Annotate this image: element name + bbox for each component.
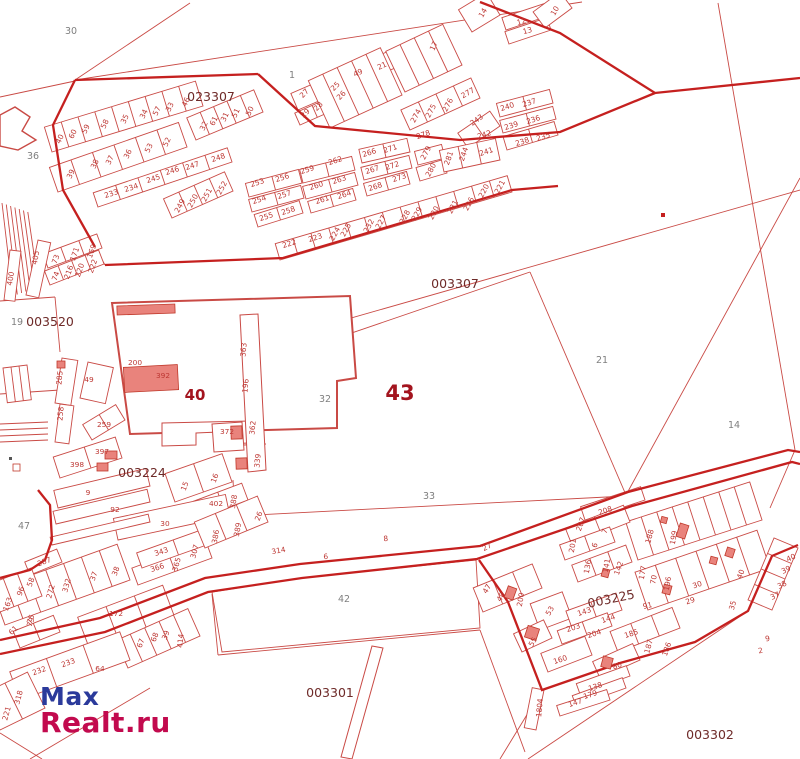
parcel-outline[interactable] (341, 646, 383, 759)
parcel-label: 339 (252, 453, 262, 468)
parcel-label: 9 (764, 634, 771, 644)
parcel-label: 35 (727, 599, 738, 611)
boundary-line (770, 450, 795, 508)
parcel-label: 49 (84, 375, 94, 384)
hatch-line (0, 440, 48, 442)
parcel-label: 414 (175, 633, 185, 648)
parcel-label: 30 (160, 519, 170, 528)
big-parcel-label: 43 (385, 381, 414, 405)
parcel-label: 1804 (534, 698, 545, 718)
quarter-label: 003224 (118, 465, 166, 480)
boundary-line (718, 3, 795, 450)
parcel-label: 402 (209, 499, 223, 508)
boundary-line (0, 733, 42, 759)
quarter-label: 023307 (187, 89, 235, 104)
survey-marker (9, 457, 12, 460)
parcel-label: 398 (70, 460, 84, 469)
parcel-label: 200 (515, 592, 526, 608)
road-line (75, 74, 258, 80)
parcel-label: 186 (660, 641, 673, 658)
parcel-label: 392 (156, 371, 170, 380)
area-label: 1 (289, 70, 295, 81)
hatch-line (0, 422, 48, 424)
building-footprint (117, 304, 175, 315)
area-label: 30 (65, 26, 77, 37)
parcel-label: 278 (415, 128, 431, 141)
parcel-label: 172 (109, 609, 123, 618)
area-label: 33 (423, 491, 435, 502)
building-footprint (97, 463, 108, 471)
big-parcel-label: 40 (185, 386, 206, 404)
parcel-label: 92 (110, 505, 119, 514)
area-label: 21 (596, 355, 608, 366)
building-footprint (123, 365, 178, 393)
parcel-label: 29 (684, 595, 696, 607)
hatch-line (0, 428, 48, 430)
area-label: 47 (18, 521, 30, 532)
boundary-line (480, 630, 525, 752)
parcel-label: 314 (271, 545, 287, 556)
parcel-label: 70 (648, 574, 659, 585)
quarter-label: 003301 (306, 685, 354, 700)
parcel-outline[interactable] (0, 107, 36, 150)
parcel-label: 285 (54, 370, 64, 385)
parcel-label: 397 (95, 447, 109, 456)
parcel-label: 389 (232, 522, 243, 538)
parcel-label: 6 (323, 552, 329, 561)
map-viewport[interactable]: 4060595835345733463938373653523261315150… (0, 0, 800, 759)
parcel-label: 258 (55, 406, 65, 421)
quarter-label: 003520 (26, 314, 74, 329)
boundary-line (75, 3, 190, 80)
area-label: 19 (11, 317, 23, 328)
hatch-line (0, 434, 48, 436)
parcel-label: 363 (238, 342, 248, 357)
boundary-line (626, 178, 800, 495)
parcel-label: 200 (128, 358, 142, 367)
building-footprint (236, 458, 247, 469)
parcel-blocks-layer (0, 0, 798, 759)
area-label: 14 (728, 420, 740, 431)
parcel-block[interactable] (26, 240, 51, 298)
parcel-label: 64 (95, 664, 105, 673)
quarter-label: 003307 (431, 276, 479, 291)
boundary-line (30, 688, 150, 759)
survey-marker (661, 213, 665, 217)
survey-marker (13, 464, 20, 471)
parcel-label: 259 (97, 420, 111, 429)
parcel-label: 141 (601, 558, 612, 574)
area-label: 36 (27, 151, 39, 162)
boundary-line (0, 81, 75, 97)
cadastral-map[interactable]: 4060595835345733463938373653523261315150… (0, 0, 800, 759)
area-label: 42 (338, 594, 350, 605)
parcel-label: 8 (383, 534, 389, 543)
parcel-label: 372 (220, 427, 234, 436)
building-footprint (709, 556, 718, 565)
parcel-outline[interactable] (112, 296, 356, 434)
boundary-line (530, 272, 626, 495)
building-footprint (57, 361, 65, 368)
parcel-label: 9 (86, 488, 91, 497)
building-footprint (660, 516, 667, 523)
quarter-label: 003302 (686, 727, 734, 742)
parcel-label: 196 (240, 378, 250, 393)
parcel-label: 2 (757, 646, 763, 656)
area-label: 32 (319, 394, 331, 405)
parcel-block[interactable] (3, 365, 31, 403)
boundary-line (75, 2, 582, 80)
parcel-label: 362 (247, 420, 257, 435)
